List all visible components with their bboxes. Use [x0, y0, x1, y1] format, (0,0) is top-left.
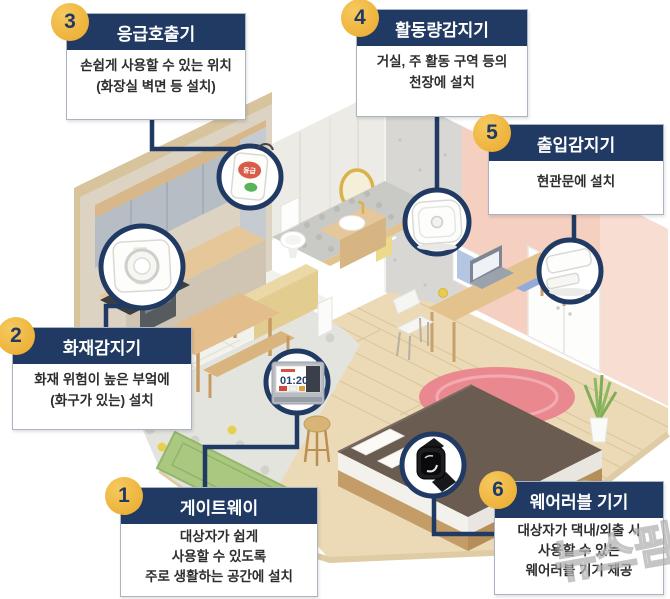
- air-purifier: [318, 297, 332, 337]
- gateway-clock: 01:20: [280, 375, 308, 387]
- description-line: 대상자가 쉽게: [180, 528, 258, 546]
- callout-description: 현관문에 설치: [489, 161, 663, 198]
- callout-emergency-call: 3 응급호출기 손쉽게 사용할 수 있는 위치 (화장실 벽면 등 설치): [66, 13, 246, 120]
- callout-description: 거실, 주 활동 구역 등의 천장에 설치: [357, 46, 527, 99]
- description-line: 천장에 설치: [409, 74, 475, 92]
- description-line: 대상자가 댁내/외출 시: [517, 522, 640, 540]
- entry-sensor-callout: [539, 240, 601, 302]
- callout-wearable: 6 웨어러블 기기 대상자가 댁내/외출 시 사용할 수 있는 웨어러블 기기 …: [494, 481, 664, 595]
- callout-entry-sensor: 5 출입감지기 현관문에 설치: [488, 124, 664, 215]
- wearable-callout: [402, 434, 464, 496]
- description-line: (화장실 벽면 등 설치): [96, 78, 216, 96]
- description-line: 사용할 수 있는: [538, 542, 620, 560]
- callout-number-badge: 6: [479, 471, 517, 509]
- activity-sensor-icon: [412, 199, 463, 244]
- callout-title: 응급호출기: [67, 14, 245, 50]
- activity-sensor-callout: [405, 190, 469, 254]
- emergency-call-icon: 응급: [231, 152, 269, 200]
- description-line: 현관문에 설치: [537, 173, 615, 191]
- callout-gateway: 1 게이트웨이 대상자가 쉽게 사용할 수 있도록 주로 생활하는 공간에 설치: [120, 487, 318, 597]
- callout-title: 웨어러블 기기: [495, 482, 663, 518]
- callout-title: 활동량감지기: [357, 10, 527, 46]
- description-line: 화재 위험이 높은 부엌에: [34, 371, 169, 389]
- callout-activity-sensor: 4 활동량감지기 거실, 주 활동 구역 등의 천장에 설치: [356, 9, 528, 117]
- description-line: (화구가 있는) 설치: [50, 392, 153, 410]
- fire-detector-icon: [113, 240, 172, 293]
- infographic-canvas: 응급 01:20: [0, 0, 670, 599]
- callout-title: 게이트웨이: [121, 488, 317, 524]
- fire-detector-callout: [101, 226, 183, 308]
- callout-number-badge: 1: [105, 477, 143, 515]
- description-line: 사용할 수 있도록: [172, 548, 266, 566]
- callout-description: 대상자가 쉽게 사용할 수 있도록 주로 생활하는 공간에 설치: [121, 524, 317, 591]
- callout-description: 손쉽게 사용할 수 있는 위치 (화장실 벽면 등 설치): [67, 50, 245, 103]
- callout-number-badge: 3: [51, 3, 89, 41]
- doorbell: [439, 289, 448, 298]
- callout-title: 화재감지기: [13, 328, 191, 364]
- gateway-icon: 01:20: [272, 362, 324, 404]
- emergency-call-callout: 응급: [219, 144, 281, 208]
- description-line: 거실, 주 활동 구역 등의: [377, 53, 508, 71]
- callout-title: 출입감지기: [489, 125, 663, 161]
- description-line: 주로 생활하는 공간에 설치: [145, 568, 293, 586]
- description-line: 웨어러블 기기 제공: [526, 562, 633, 580]
- gateway-callout: 01:20: [266, 351, 328, 413]
- description-line: 손쉽게 사용할 수 있는 위치: [80, 57, 232, 75]
- callout-fire-detector: 2 화재감지기 화재 위험이 높은 부엌에 (화구가 있는) 설치: [12, 327, 192, 430]
- callout-description: 화재 위험이 높은 부엌에 (화구가 있는) 설치: [13, 364, 191, 417]
- callout-number-badge: 4: [341, 0, 379, 37]
- callout-number-badge: 5: [473, 114, 511, 152]
- callout-description: 대상자가 댁내/외출 시 사용할 수 있는 웨어러블 기기 제공: [495, 518, 663, 585]
